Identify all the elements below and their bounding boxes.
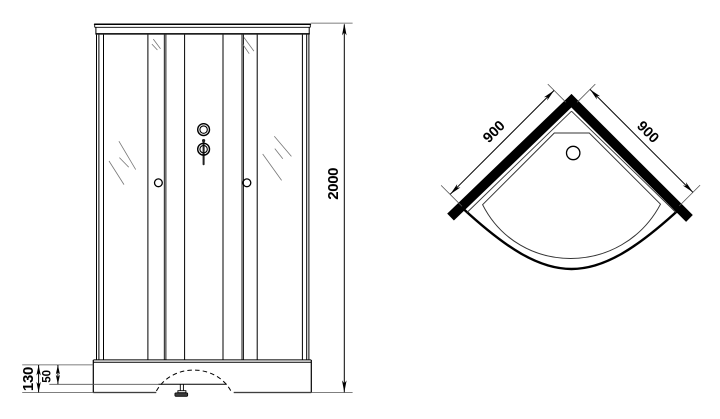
svg-text:50: 50 bbox=[42, 370, 54, 383]
svg-text:2000: 2000 bbox=[325, 168, 342, 200]
svg-text:130: 130 bbox=[20, 367, 37, 391]
